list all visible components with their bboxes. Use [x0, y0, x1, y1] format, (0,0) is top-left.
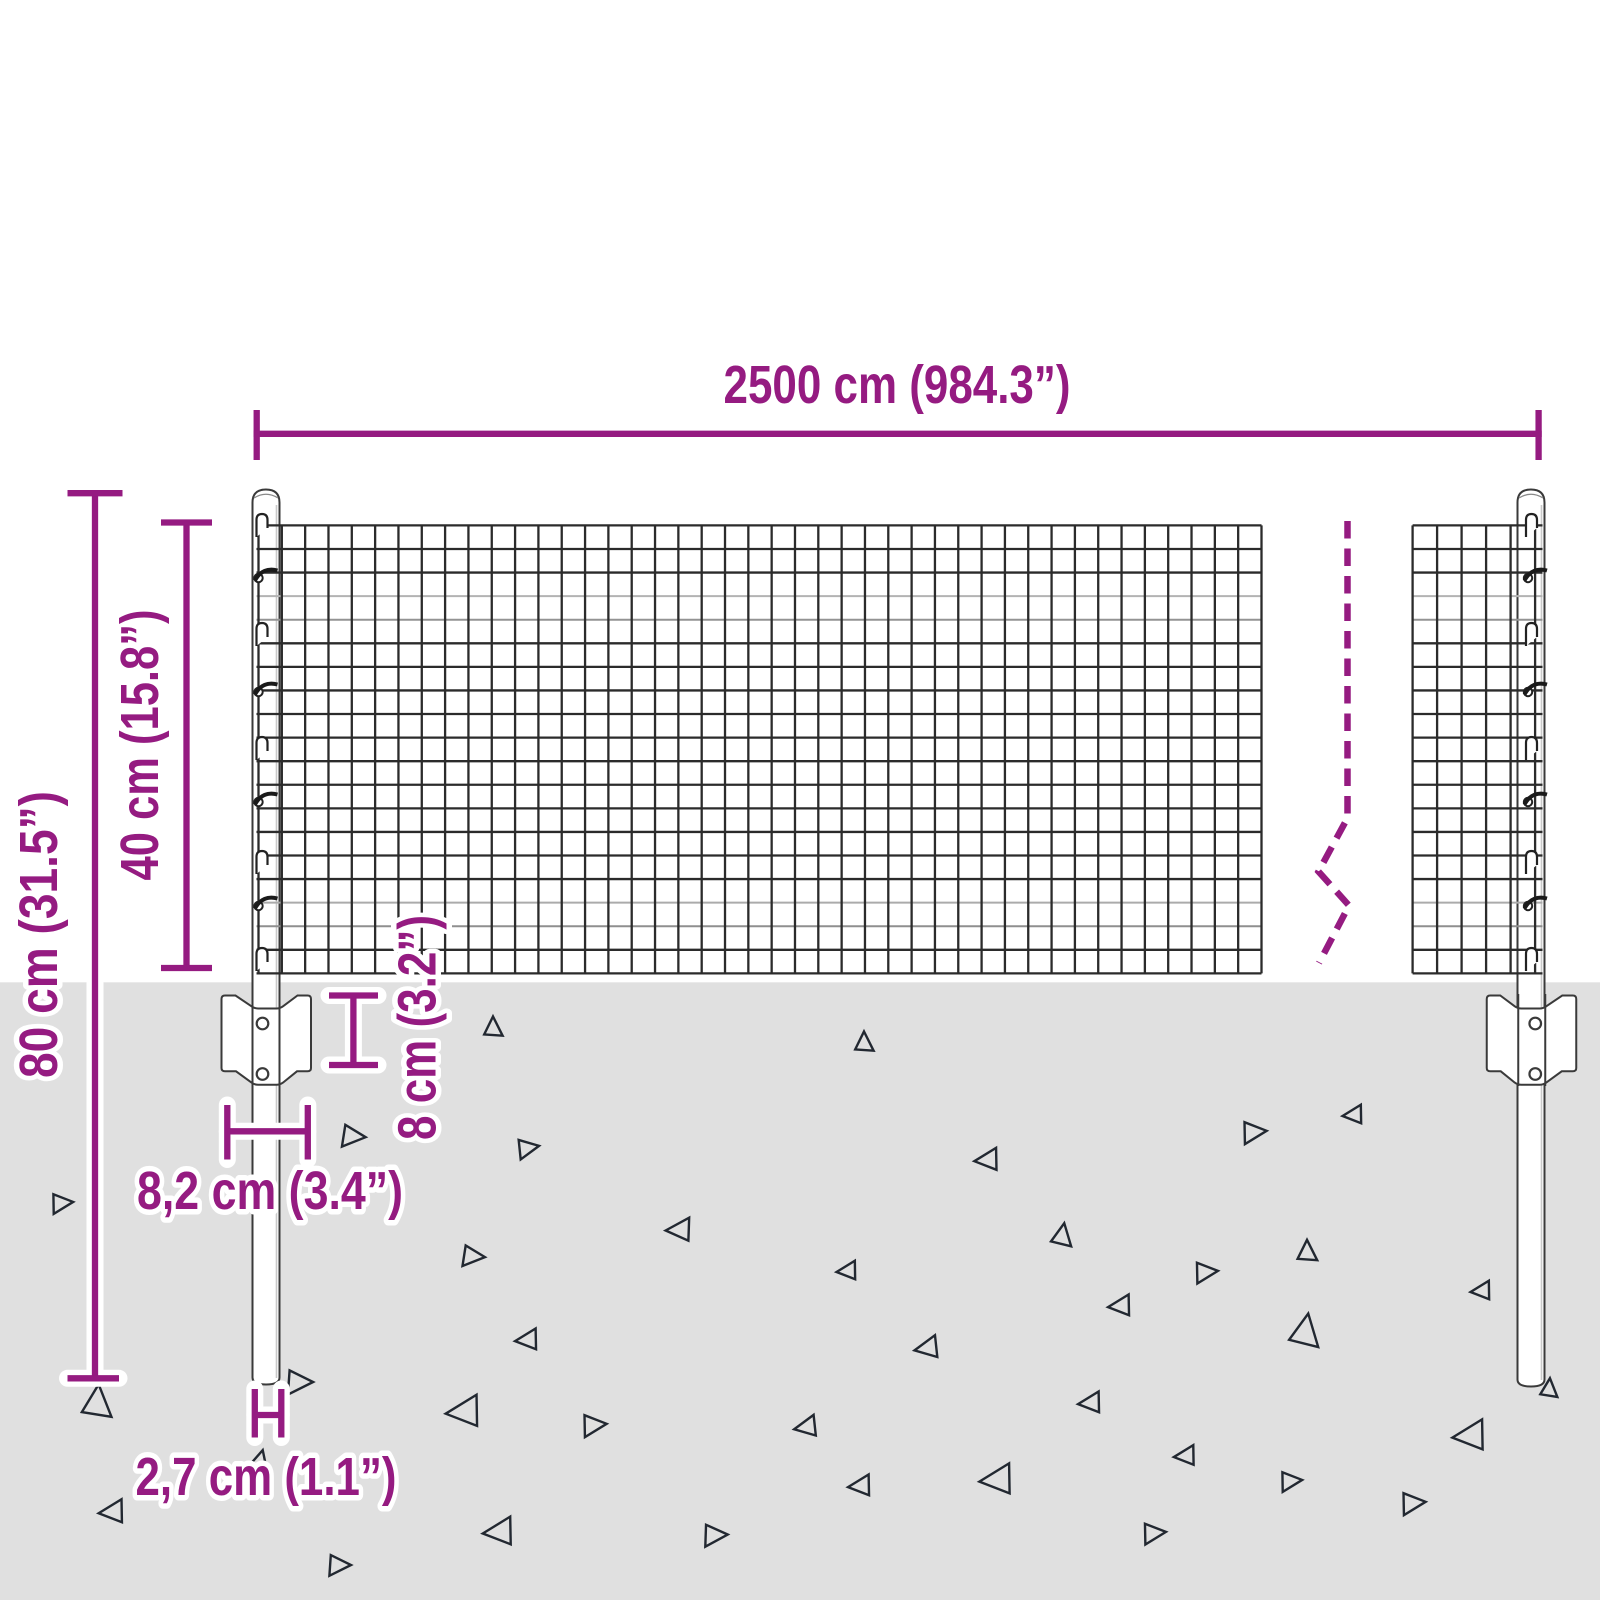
svg-text:8 cm (3.2”): 8 cm (3.2”)	[388, 915, 448, 1140]
svg-text:2,7 cm (1.1”): 2,7 cm (1.1”)	[136, 1447, 397, 1507]
svg-text:80 cm (31.5”): 80 cm (31.5”)	[9, 791, 69, 1078]
svg-text:40 cm (15.8”): 40 cm (15.8”)	[110, 610, 170, 881]
svg-text:2500 cm (984.3”): 2500 cm (984.3”)	[724, 355, 1071, 415]
svg-text:8,2 cm (3.4”): 8,2 cm (3.4”)	[137, 1161, 403, 1221]
